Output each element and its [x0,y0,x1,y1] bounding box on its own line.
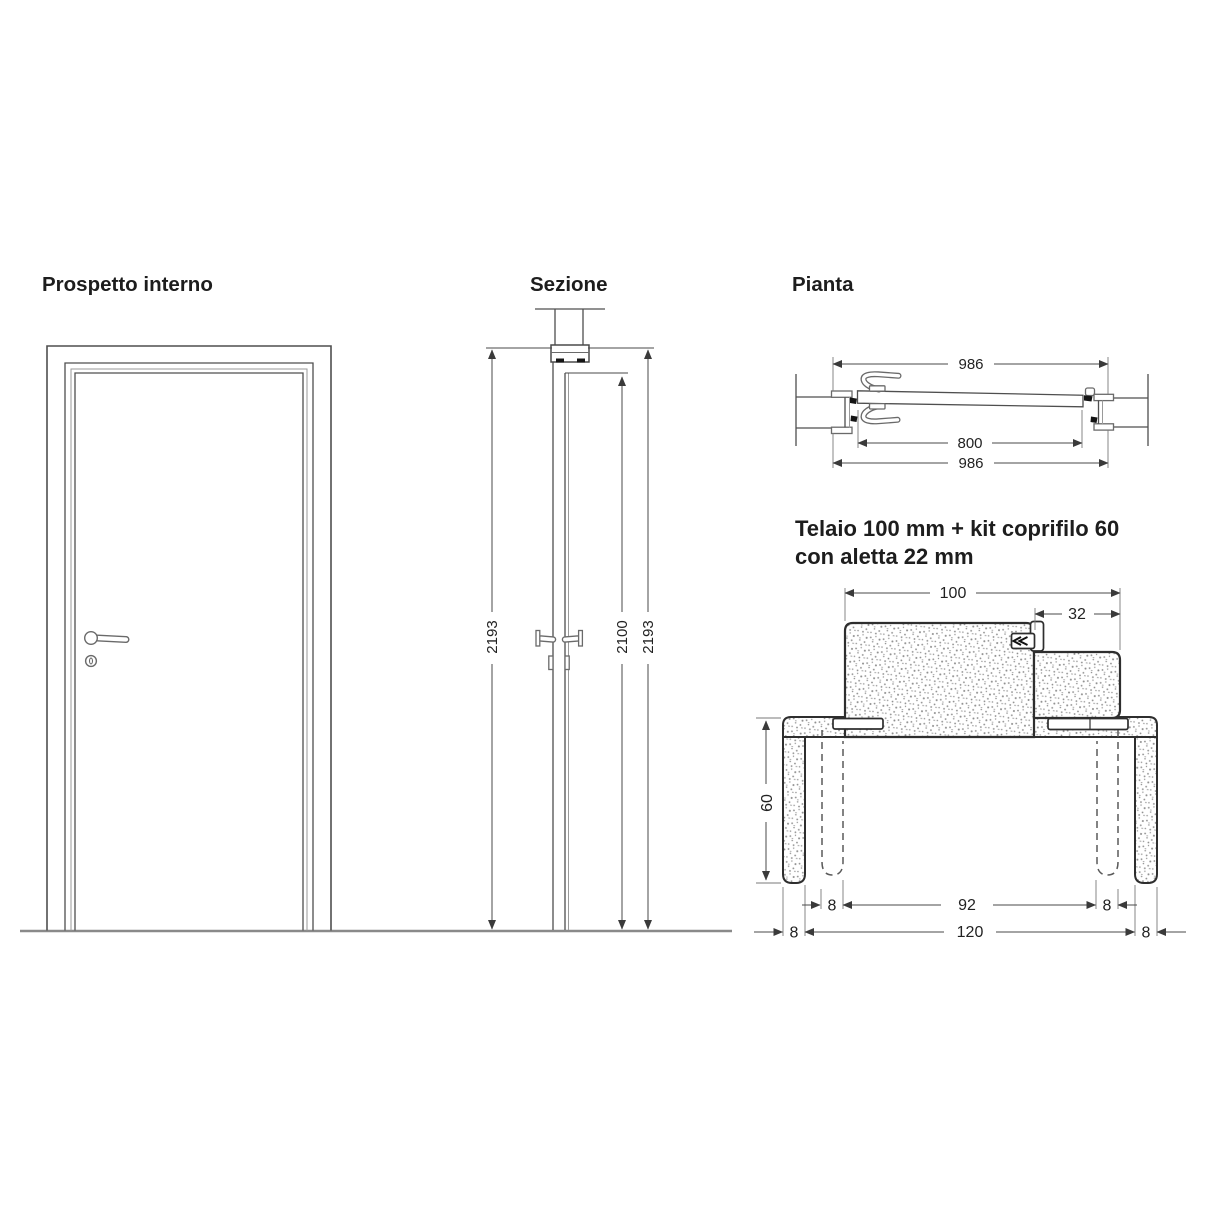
dim-120: 120 [957,924,984,941]
strike-seal-bottom [851,416,858,423]
dim-60: 60 [759,794,776,812]
plan-right-wall [1113,374,1148,446]
hinge-knuckle [1086,388,1095,396]
coprifilo-leg-right [1135,737,1157,883]
prospetto-view: Prospetto interno [42,273,331,931]
dim-8-outer-left: 8 [790,925,799,942]
lock-plate-right [565,656,569,670]
strike-seal-top [850,398,857,405]
dim-800: 800 [957,435,982,452]
dim-2193-left: 2193 [484,620,501,653]
sezione-view: Sezione 2193 [483,273,657,930]
pianta-title: Pianta [792,273,854,296]
telaio-title-line2: con aletta 22 mm [795,544,974,569]
dim-32: 32 [1068,606,1086,623]
lock-plate-left [549,656,553,670]
dim-2193-right: 2193 [640,620,657,653]
dim-2100: 2100 [614,620,631,653]
handle-rosette [85,632,98,645]
coprifilo-leg-left [783,737,805,883]
sezione-title: Sezione [530,273,607,296]
section-handles [536,631,582,670]
aletta-clip [1012,634,1035,649]
door-leaf-gap [71,369,307,931]
drawing-canvas: Prospetto interno Sezione [0,0,1214,1214]
hidden-jamb-right [1097,730,1118,875]
plan-left-wall [796,374,845,446]
seal-right [577,359,585,363]
aletta-wing-right [1048,719,1128,730]
dim-986-top: 986 [958,356,983,373]
plan-lock-jamb [832,391,858,434]
dim-8-outer-right: 8 [1142,925,1151,942]
dim-92: 92 [958,897,976,914]
plan-hinge-jamb [1084,388,1114,430]
telaio-block-rebate [1034,652,1120,718]
hidden-jamb-left [822,730,843,875]
seal-left [556,359,564,363]
prospetto-title: Prospetto interno [42,273,213,296]
handle-end-right [579,631,583,647]
plan-door-leaf [858,391,1084,407]
frame-head-section [551,345,589,363]
telaio-detail-view: Telaio 100 mm + kit coprifilo 60 con ale… [754,516,1186,942]
dim-100: 100 [940,585,967,602]
aletta-wing-left [833,719,883,730]
dim-8-inner-left: 8 [828,898,837,915]
door-handle [85,632,126,645]
keyhole-escutcheon [86,656,97,667]
door-technical-drawing: Prospetto interno Sezione [0,0,1214,1214]
door-casing-inner [65,363,313,931]
door-leaf-edge [75,373,303,931]
handle-end-left [536,631,540,647]
pianta-view: Pianta [792,273,1148,472]
telaio-title-line1: Telaio 100 mm + kit coprifilo 60 [795,516,1119,541]
dim-986-bottom: 986 [958,455,983,472]
dim-8-inner-right: 8 [1103,898,1112,915]
